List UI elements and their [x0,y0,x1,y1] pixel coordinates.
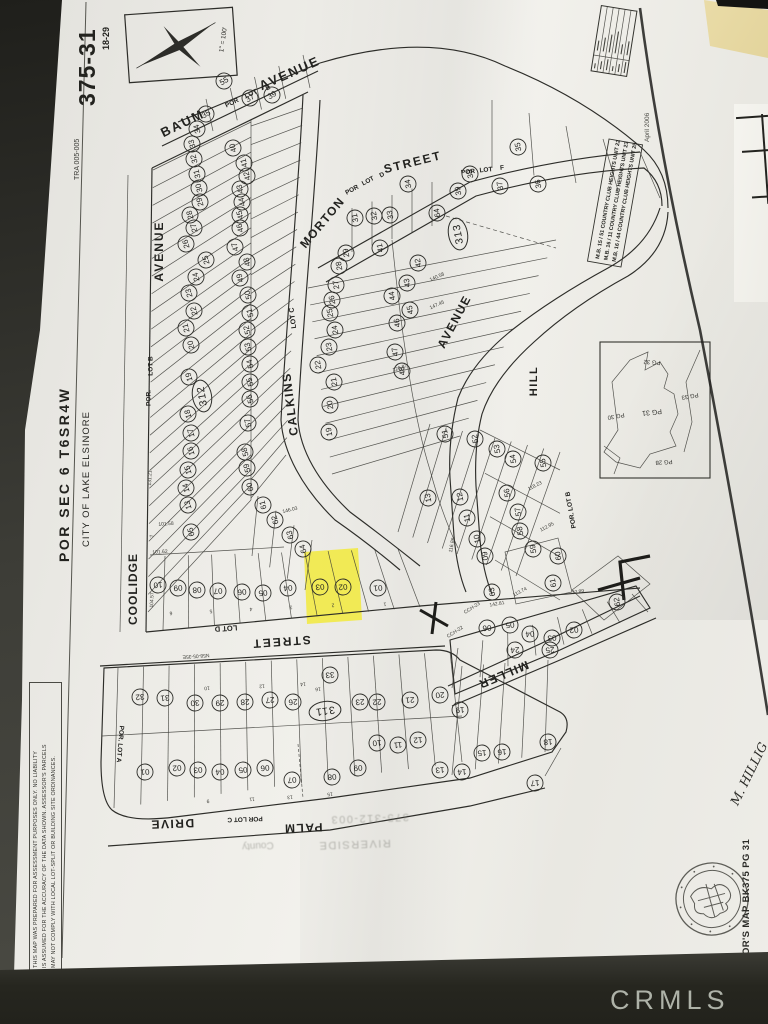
lot-marker: 29 [211,694,228,711]
svg-text:07: 07 [213,586,223,596]
lot-marker: 62 [265,510,285,530]
street-label: AVENUE [152,220,166,281]
svg-text:30: 30 [190,698,200,708]
svg-text:58: 58 [239,446,250,457]
tra-number: TRA 005-005 [74,139,81,180]
svg-text:30: 30 [193,182,204,193]
svg-text:54: 54 [508,453,519,464]
street-label: LOT [361,175,376,187]
svg-text:56: 56 [244,393,255,404]
svg-text:16: 16 [497,747,507,757]
underlying-form-page [734,104,768,302]
svg-text:03: 03 [193,765,203,775]
lot-marker: 07 [209,582,226,599]
svg-text:15: 15 [477,748,487,758]
dim-label: 9 [206,798,210,804]
lot-marker: 06 [233,583,250,600]
svg-text:55: 55 [538,457,549,468]
street-label: DRIVE [150,816,195,832]
svg-text:10: 10 [372,738,382,748]
dim-label: 104.57 [149,592,156,608]
street-label: COOLIDGE [126,553,140,625]
street-label: F [500,165,505,172]
faint-county-stamp: County [242,839,274,852]
svg-text:25: 25 [545,645,555,655]
svg-text:22: 22 [372,697,382,707]
svg-text:24: 24 [190,271,201,282]
svg-text:41: 41 [238,157,249,168]
page-index-inset-map: PG 31PG 30PG 32PG 33PG 28 [600,342,710,478]
scale-label: 1" = 100' [218,27,228,53]
svg-text:64: 64 [297,543,308,554]
lot-marker: 13 [431,761,448,778]
lot-marker: 31 [187,164,207,184]
inset-page-label: PG 31 [642,407,663,416]
dim-label: 140.58 [429,271,446,283]
svg-text:55: 55 [244,376,255,387]
dim-label: 112.95 [539,521,555,533]
svg-text:24: 24 [330,324,341,335]
svg-text:11: 11 [462,513,472,523]
lot-marker: 04 [521,625,538,642]
street-label: POR. LOT B [564,491,577,529]
svg-text:27: 27 [188,222,199,233]
dim-label: 10 [204,684,210,690]
lot-marker: 19 [179,367,199,387]
lot-marker: 01 [369,579,386,596]
street-label: POR LOT C [227,815,263,823]
svg-text:41: 41 [375,242,386,253]
lot-marker: 05 [501,616,518,633]
lot-marker: 24 [186,267,206,287]
dim-label: 6 [169,610,172,616]
svg-text:52: 52 [470,433,481,444]
svg-text:26: 26 [288,697,298,707]
street-label: LOT [479,166,493,174]
lot-marker: 05 [234,761,251,778]
lot-marker: 23 [351,693,368,710]
lot-marker: 50 [238,285,258,305]
svg-text:39: 39 [453,185,464,196]
lot-marker: 33 [321,666,338,683]
lot-marker: 09 [349,759,366,776]
svg-text:27: 27 [265,695,275,705]
svg-text:10: 10 [472,533,483,544]
svg-text:23: 23 [183,287,194,298]
street-label: CALKINS [279,372,301,437]
lot-marker: 03 [543,629,560,646]
lot-marker: 09 [169,579,186,596]
svg-text:14: 14 [457,767,467,777]
svg-text:09: 09 [353,763,363,773]
street-label: MORTON [297,194,348,251]
lot-marker: 24 [326,321,345,340]
disclaimer-line: MAY NOT COMPLY WITH LOCAL LOT-SPLIT OR B… [50,687,59,968]
svg-text:09: 09 [173,583,183,593]
svg-text:37: 37 [495,180,506,191]
lot-marker: 10 [468,530,487,549]
lot-marker: 40 [223,138,243,158]
svg-text:20: 20 [435,690,445,700]
lot-marker: 31 [346,209,365,228]
svg-text:27: 27 [331,279,342,290]
dim-label: 16 [315,685,321,691]
svg-text:05: 05 [238,765,248,775]
lot-marker: 08 [323,768,340,785]
svg-text:57: 57 [513,506,524,517]
svg-text:22: 22 [313,359,324,370]
lot-marker: 56 [240,389,260,409]
lot-marker: 17 [181,423,201,443]
dim-label: 12 [259,682,265,688]
svg-text:22: 22 [188,305,199,316]
lot-marker: 43 [398,274,417,293]
svg-text:24: 24 [510,645,520,655]
svg-text:50: 50 [242,289,253,300]
svg-text:60: 60 [553,550,564,561]
section-title: POR SEC 6 T6SR4W [56,387,72,562]
svg-text:62: 62 [269,514,280,525]
svg-text:13: 13 [423,492,434,503]
lot-marker: 60 [240,477,260,497]
svg-text:32: 32 [135,692,145,702]
lot-marker: 57 [509,503,528,522]
dim-label: CCH-22 [446,625,465,640]
faint-riverside-stamp: RIVERSIDE [318,837,391,852]
svg-text:56: 56 [502,487,513,498]
svg-text:03: 03 [547,633,557,643]
lot-marker: 21 [401,691,418,708]
svg-text:311: 311 [314,703,335,718]
svg-text:05: 05 [258,588,268,598]
street-label: PALM [283,820,323,835]
lot-marker: 29 [337,244,356,263]
svg-text:02: 02 [338,582,348,592]
lot-marker: 27 [327,276,346,295]
street-label: STREET [382,148,443,176]
lot-marker: 27 [261,691,278,708]
lot-marker: 20 [321,396,340,415]
lot-marker: 63 [280,525,300,545]
svg-text:42: 42 [413,257,424,268]
svg-text:62: 62 [612,596,623,607]
svg-text:23: 23 [355,697,365,707]
svg-text:63: 63 [284,529,295,540]
svg-text:49: 49 [234,272,245,283]
lot-marker: 05 [254,584,271,601]
lot-marker: 10 [368,734,385,751]
lot-marker: 23 [179,283,199,303]
svg-text:36: 36 [533,178,544,189]
svg-text:313: 313 [451,223,466,245]
svg-text:54: 54 [244,358,255,369]
lot-marker: 32 [365,207,384,226]
lot-marker: 12 [451,488,470,507]
svg-text:33: 33 [385,209,396,220]
svg-text:20: 20 [185,339,196,350]
lot-marker: 31 [156,689,173,706]
lot-marker: 55 [213,70,235,92]
photo-of-assessor-map: BAUMPORLOTEAVENUEAVENUECOOLIDGELOT CCALK… [0,0,768,1024]
lot-marker: 59 [237,458,257,478]
dim-label: 5 [209,608,212,614]
svg-text:08: 08 [192,585,202,595]
svg-text:13: 13 [182,499,193,510]
lot-marker: 06 [256,759,273,776]
svg-text:12: 12 [413,735,423,745]
dim-label: 15 [327,790,333,796]
street-label: LOT C [289,307,299,329]
dim-label: 142.81 [489,600,505,609]
svg-text:25: 25 [200,254,211,265]
svg-text:21: 21 [329,376,340,387]
svg-text:07: 07 [287,775,297,785]
street-label: POR [344,184,360,197]
svg-text:28: 28 [240,697,250,707]
svg-text:29: 29 [341,247,352,258]
svg-text:12: 12 [455,491,466,502]
dim-label: 131.21 [147,470,154,486]
svg-text:43: 43 [402,277,413,288]
svg-text:47: 47 [229,241,240,252]
lot-marker: 24 [506,641,523,658]
lot-marker: 23 [320,338,339,357]
svg-text:20: 20 [325,399,336,410]
lot-marker: 64 [428,204,447,223]
svg-text:17: 17 [185,427,196,438]
svg-text:63: 63 [487,586,498,597]
dim-label: 146.03 [282,506,299,516]
lot-marker: 16 [181,441,201,461]
map-date: April 2006 [644,113,651,142]
lot-marker: 54 [504,450,523,469]
svg-text:19: 19 [324,426,335,437]
svg-text:28: 28 [184,209,195,220]
street-label: POR. [146,390,153,406]
street-label: POR [224,97,240,110]
dim-label: 4 [249,606,252,612]
lot-marker: 19 [320,423,339,442]
lot-marker: 13 [419,489,438,508]
cross-reference: 18-29 [101,27,111,50]
svg-text:13: 13 [435,765,445,775]
lot-marker: 25 [541,641,558,658]
dim-label: 3 [289,604,292,610]
street-label: HILL [528,366,540,396]
lot-marker: 33 [381,206,400,225]
compass-rose: 1" = 100' [125,7,237,82]
revision-table [591,6,637,77]
lot-marker: 53 [488,440,507,459]
street-label: STREET [251,633,311,651]
lot-marker: 08 [188,581,205,598]
svg-text:08: 08 [327,772,337,782]
lot-marker: 34 [399,175,418,194]
svg-text:43: 43 [234,183,245,194]
lot-marker: 57 [238,413,258,433]
city-label: CITY OF LAKE ELSINORE [81,411,92,547]
svg-text:25: 25 [325,307,336,318]
svg-text:61: 61 [257,499,268,510]
lot-marker: 15 [178,460,198,480]
svg-text:46: 46 [392,317,403,328]
svg-text:44: 44 [236,196,247,207]
svg-text:32: 32 [369,210,380,221]
svg-text:53: 53 [242,341,253,352]
dim-label: 13 [287,793,293,799]
svg-text:23: 23 [324,341,335,352]
svg-text:31: 31 [160,693,170,703]
disclaimer-line: IS ASSUMED FOR THE ACCURACY OF THE DATA … [41,687,50,968]
svg-text:45: 45 [234,209,245,220]
svg-text:03: 03 [315,582,325,592]
lot-marker: 55 [240,372,260,392]
svg-text:18: 18 [543,737,553,747]
lot-marker: 61 [544,574,563,593]
lot-marker: 30 [186,694,203,711]
svg-text:31: 31 [191,168,202,179]
svg-text:28: 28 [334,260,345,271]
svg-text:17: 17 [530,778,540,788]
lot-marker: 18 [178,404,198,424]
lot-marker: 21 [325,373,344,392]
lot-marker: 47 [386,343,405,362]
lot-marker: 22 [184,301,204,321]
lot-marker: 32 [131,688,148,705]
lot-marker: 04 [211,763,228,780]
svg-text:40: 40 [227,142,238,153]
form-line [761,114,768,204]
lot-marker: 03 [189,761,206,778]
lot-marker: 12 [409,731,426,748]
svg-text:19: 19 [455,705,465,715]
svg-text:04: 04 [283,583,293,593]
bold-cross-mark [420,602,448,634]
lot-marker: 42 [409,254,428,273]
svg-text:04: 04 [215,767,225,777]
dimension-labels: N58-05-35E104.57101.58101.62131.21146.03… [147,271,585,803]
svg-text:64: 64 [432,207,443,218]
lot-marker: 26 [284,693,301,710]
svg-text:57: 57 [242,417,253,428]
dim-label: 14 [300,680,306,686]
svg-text:45: 45 [405,304,416,315]
lot-marker: 48 [237,252,257,272]
svg-text:33: 33 [186,138,197,149]
dim-label: 1 [383,601,386,607]
dim-label: 113.74 [512,586,528,598]
svg-text:02: 02 [172,763,182,773]
disclaimer-line: THIS MAP WAS PREPARED FOR ASSESSMENT PUR… [32,687,41,968]
lot-marker: 37 [491,177,510,196]
lot-marker: 44 [383,287,402,306]
dim-label: 101.62 [152,549,168,556]
svg-text:51: 51 [244,307,255,318]
lot-marker: 01 [136,763,153,780]
crmls-watermark: CRMLS [610,985,730,1016]
lot-marker: 02 [168,759,185,776]
inset-page-label: PG 28 [655,458,673,465]
lot-marker: 20 [431,686,448,703]
svg-text:06: 06 [260,763,270,773]
svg-text:26: 26 [327,294,338,305]
dim-label: 7 [149,534,155,538]
svg-text:18: 18 [182,408,193,419]
svg-text:19: 19 [183,371,194,382]
lot-marker: 36 [529,175,548,194]
map-number: 375-31 [74,28,101,106]
svg-text:33: 33 [325,670,335,680]
inset-page-label: PG 33 [680,391,698,400]
lot-marker: 35 [509,138,528,157]
svg-text:01: 01 [140,767,150,777]
lot-marker: 30 [189,178,209,198]
svg-text:61: 61 [548,577,559,588]
street-label: BAUM [158,106,207,140]
mb-reference-box: M.B. 15 / 51 COUNTRY CLUB HEIGHTS UNIT 2… [587,138,642,267]
street-label: LOT D [214,623,238,634]
street-label: LOT B [148,356,155,376]
svg-text:47: 47 [390,346,401,357]
svg-text:31: 31 [350,212,361,223]
lot-marker: 16 [493,743,510,760]
form-line [752,195,768,198]
svg-text:32: 32 [188,153,199,164]
dim-label: N58-05-35E [182,652,210,660]
svg-text:04: 04 [525,629,535,639]
lot-marker: 07 [283,771,300,788]
dim-label: 118.23 [527,480,543,492]
svg-text:34: 34 [403,178,414,189]
lot-marker: 51 [240,303,260,323]
svg-text:29: 29 [194,196,205,207]
svg-text:16: 16 [185,445,196,456]
svg-text:11: 11 [393,740,403,750]
svg-text:35: 35 [513,141,524,152]
lot-marker: 28 [236,693,253,710]
svg-text:312: 312 [195,385,210,407]
dim-label: 101.58 [158,521,174,528]
svg-text:21: 21 [405,695,415,705]
svg-text:10: 10 [153,580,163,590]
svg-text:06: 06 [482,623,492,633]
svg-text:02: 02 [569,625,579,635]
lot-marker: 63 [483,583,502,602]
lot-marker: 53 [238,337,258,357]
svg-text:05: 05 [505,620,515,630]
parcel-map: BAUMPORLOTEAVENUEAVENUECOOLIDGELOT CCALK… [0,0,768,1024]
svg-text:06: 06 [237,587,247,597]
svg-text:44: 44 [387,290,398,301]
svg-text:01: 01 [373,583,383,593]
dim-label: 11 [249,795,255,801]
disclaimer-box: THIS MAP WAS PREPARED FOR ASSESSMENT PUR… [29,682,62,973]
svg-text:59: 59 [528,543,539,554]
lot-marker: 11 [389,736,406,753]
svg-text:46: 46 [234,222,245,233]
svg-text:53: 53 [492,443,503,454]
dim-label: CCH-23 [463,601,482,616]
inset-page-label: PG 32 [643,358,661,365]
svg-text:60: 60 [244,481,255,492]
dim-label: 72.89 [571,588,585,596]
lot-marker: 59 [524,540,543,559]
svg-text:29: 29 [215,698,225,708]
dim-label: 147.45 [429,299,446,311]
svg-text:51: 51 [440,428,451,439]
